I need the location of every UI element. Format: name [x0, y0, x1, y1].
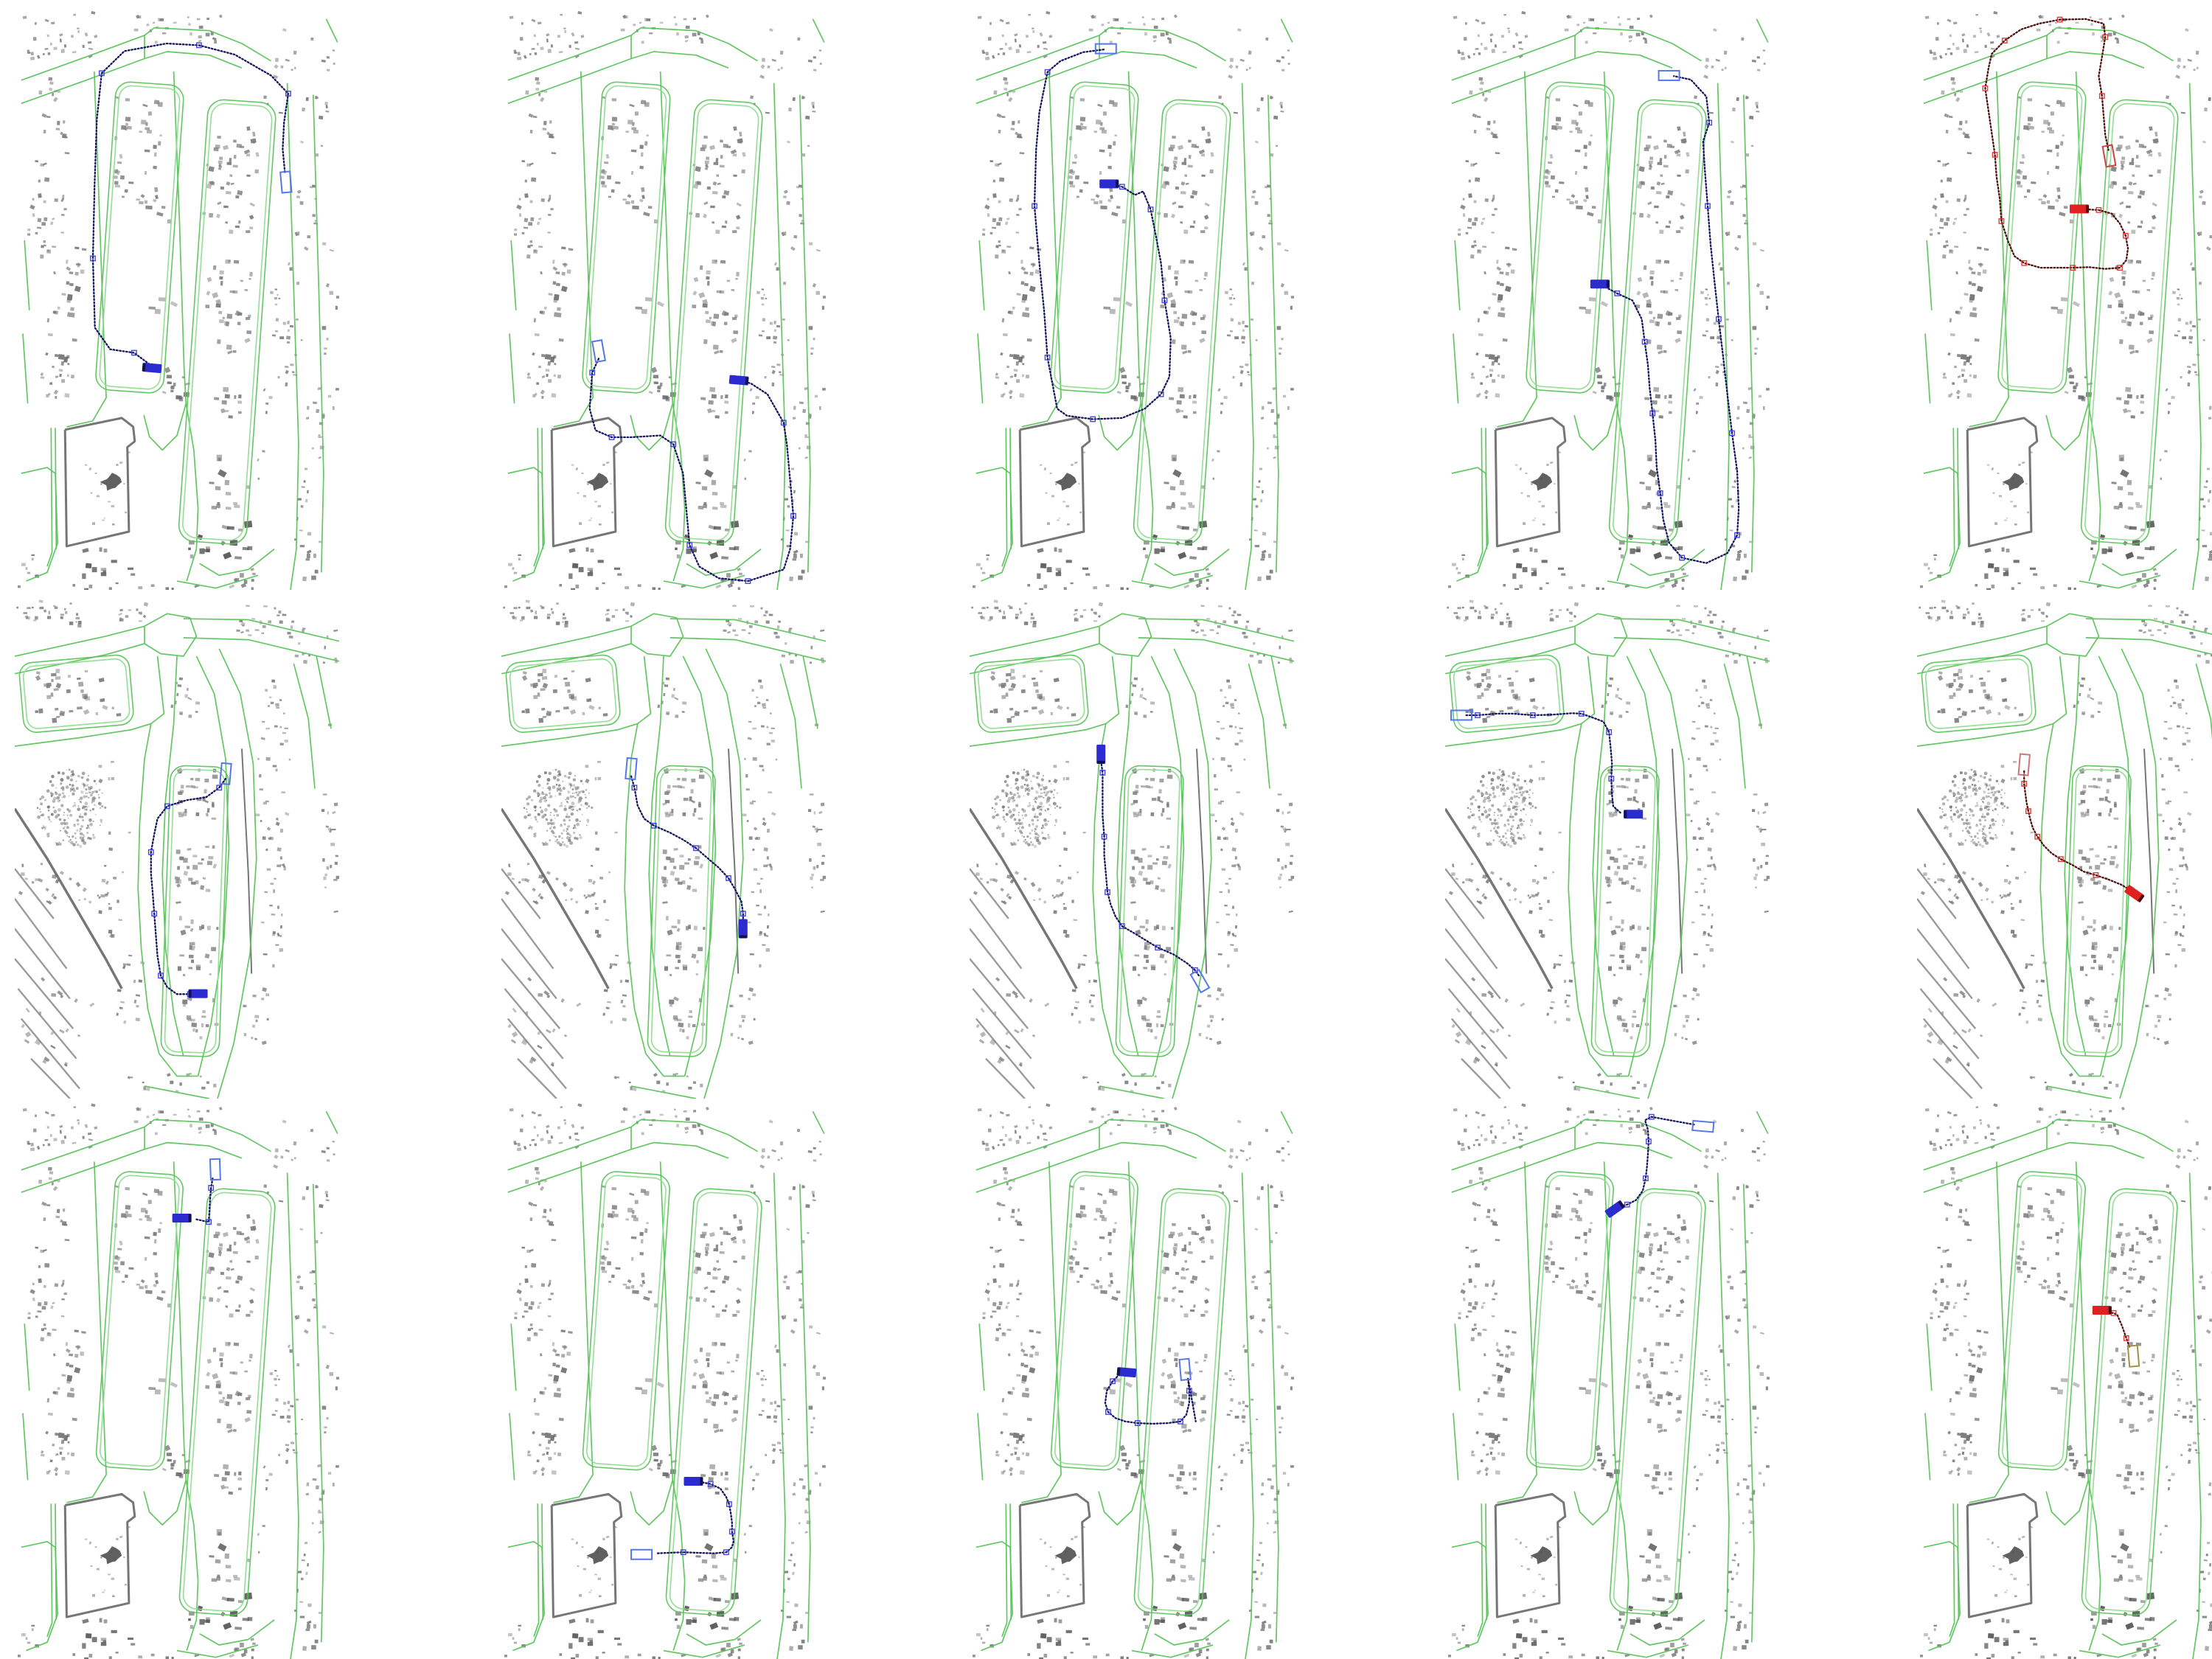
goal-box: [210, 1159, 220, 1180]
ego-vehicle: [189, 990, 208, 998]
trajectory: [1032, 44, 1171, 422]
map-roads: [976, 1111, 1293, 1659]
map-buildings: [970, 599, 1294, 1093]
map-base: [973, 9, 1294, 590]
tree-blob: [992, 768, 1062, 848]
courtyard-tree-blob: [100, 1546, 122, 1564]
courtyard-tree-blob: [1531, 1546, 1553, 1564]
map-base: [504, 9, 826, 590]
map-canvas-r2c4: [1445, 599, 1770, 1099]
tree-blob: [1467, 768, 1537, 848]
map-walls: [1967, 418, 2037, 546]
trajectory: [631, 1477, 734, 1559]
map-base: [1448, 9, 1770, 590]
trajectory-map-panel-r2c4: [1445, 599, 1770, 1099]
map-walls: [15, 748, 251, 988]
courtyard-tree-blob: [1531, 473, 1553, 490]
map-base: [973, 1101, 1294, 1659]
ego-vehicle: [684, 1477, 703, 1486]
trajectory: [1451, 710, 1643, 818]
map-canvas-r2c5: [1917, 599, 2212, 1099]
trajectory-path: [2024, 771, 2129, 890]
map-canvas-r1c4: [1445, 7, 1770, 590]
trajectory-markers: [91, 43, 291, 355]
goal-box: [1692, 1121, 1714, 1132]
map-canvas-r3c2: [501, 1100, 826, 1659]
trajectory-map-panel-r2c5: [1917, 599, 2212, 1099]
goal-box: [1659, 71, 1680, 80]
map-canvas-r1c2: [501, 7, 826, 590]
tree-blob: [1939, 768, 2009, 848]
map-canvas-r3c3: [970, 1100, 1294, 1659]
tree-blob: [37, 768, 107, 848]
ego-vehicle: [1099, 179, 1119, 188]
trajectory-map-panel-r3c4: [1445, 1100, 1770, 1659]
hatch-lines: [1445, 869, 1510, 1099]
map-base: [18, 1101, 339, 1659]
trajectory-map-panel-r1c4: [1445, 7, 1770, 590]
map-roads: [1445, 613, 1770, 1099]
map-buildings: [1445, 599, 1770, 1093]
map-roads: [1452, 19, 1768, 590]
hatch-lines: [15, 869, 80, 1099]
map-roads: [976, 19, 1293, 590]
trajectory-map-panel-r3c2: [501, 1100, 826, 1659]
trajectory-path: [93, 44, 288, 366]
map-walls: [65, 1494, 135, 1617]
map-walls: [1495, 418, 1565, 546]
ego-vehicle: [1116, 1367, 1136, 1377]
map-base: [1917, 599, 2212, 1099]
goal-box: [631, 1550, 652, 1559]
map-buildings: [1920, 1101, 2212, 1659]
tree-blob: [524, 768, 594, 848]
map-canvas-r3c5: [1917, 1100, 2212, 1659]
courtyard-tree-blob: [2003, 1546, 2025, 1564]
map-walls: [1020, 418, 1090, 546]
map-walls: [1445, 748, 1682, 988]
map-canvas-r1c5: [1917, 7, 2212, 590]
goal-box: [1096, 44, 1116, 54]
map-walls: [1967, 1494, 2037, 1617]
map-walls: [1917, 748, 2154, 988]
trajectory-path: [2109, 1312, 2130, 1347]
trajectory-figure-grid: [0, 0, 2212, 1659]
map-base: [1448, 1101, 1770, 1659]
map-base: [15, 599, 339, 1099]
courtyard-tree-blob: [587, 473, 609, 490]
trajectory-map-panel-r3c1: [15, 1100, 339, 1659]
trajectory-path: [1985, 19, 2128, 269]
map-roads: [1924, 19, 2212, 590]
ego-vehicle: [173, 1214, 192, 1222]
map-roads: [1924, 1111, 2212, 1659]
goal-box: [2128, 1346, 2139, 1367]
map-base: [504, 1101, 826, 1659]
ego-vehicle: [2070, 204, 2089, 213]
map-roads: [21, 1111, 338, 1659]
ego-vehicle: [739, 919, 748, 938]
hatch-lines: [501, 869, 566, 1099]
ego-vehicle: [1590, 279, 1610, 288]
map-walls: [1495, 1494, 1565, 1617]
hatch-lines: [970, 869, 1034, 1099]
map-canvas-r3c4: [1445, 1100, 1770, 1659]
goal-box: [1179, 1359, 1190, 1380]
trajectory-map-panel-r3c5: [1917, 1100, 2212, 1659]
trajectory-map-panel-r1c3: [970, 7, 1294, 590]
hatch-lines: [1917, 869, 1982, 1099]
map-canvas-r2c1: [15, 599, 339, 1099]
courtyard-tree-blob: [587, 1546, 609, 1564]
map-base: [501, 599, 826, 1099]
map-canvas-r1c3: [970, 7, 1294, 590]
ego-vehicle: [1096, 745, 1105, 764]
ego-vehicle: [2093, 1306, 2112, 1315]
trajectory-path: [151, 779, 226, 994]
map-base: [970, 599, 1294, 1099]
map-buildings: [1920, 9, 2212, 590]
map-roads: [508, 19, 824, 590]
ego-vehicle: [142, 363, 162, 373]
courtyard-tree-blob: [100, 473, 122, 490]
map-roads: [508, 1111, 824, 1659]
trajectory-markers: [2111, 1311, 2129, 1341]
map-buildings: [501, 599, 826, 1093]
map-walls: [1020, 1494, 1090, 1617]
courtyard-tree-blob: [2003, 473, 2025, 490]
map-base: [1920, 1101, 2212, 1659]
map-canvas-r2c3: [970, 599, 1294, 1099]
trajectory-map-panel-r1c5: [1917, 7, 2212, 590]
map-walls: [65, 418, 135, 546]
map-roads: [21, 19, 338, 590]
trajectory-path: [1600, 76, 1739, 563]
map-roads: [501, 613, 826, 1099]
map-buildings: [15, 599, 339, 1093]
map-walls: [501, 748, 738, 988]
map-walls: [552, 1494, 622, 1617]
trajectory: [625, 758, 747, 938]
trajectory-map-panel-r2c3: [970, 599, 1294, 1099]
trajectory-map-panel-r1c1: [15, 7, 339, 590]
map-canvas-r3c1: [15, 1100, 339, 1659]
ego-vehicle: [729, 375, 749, 385]
map-roads: [1452, 1111, 1768, 1659]
trajectory-map-panel-r2c2: [501, 599, 826, 1099]
map-base: [1920, 9, 2212, 590]
courtyard-tree-blob: [1055, 1546, 1077, 1564]
ego-vehicle: [1624, 810, 1643, 818]
map-canvas-r2c2: [501, 599, 826, 1099]
trajectory-markers: [632, 785, 745, 916]
map-roads: [15, 613, 339, 1099]
trajectory-map-panel-r3c3: [970, 1100, 1294, 1659]
trajectory: [1096, 745, 1209, 992]
courtyard-tree-blob: [1055, 473, 1077, 490]
map-roads: [970, 613, 1294, 1099]
trajectory-map-panel-r2c1: [15, 599, 339, 1099]
trajectory-map-panel-r1c2: [501, 7, 826, 590]
map-canvas-r1c1: [15, 7, 339, 590]
map-base: [1445, 599, 1770, 1099]
